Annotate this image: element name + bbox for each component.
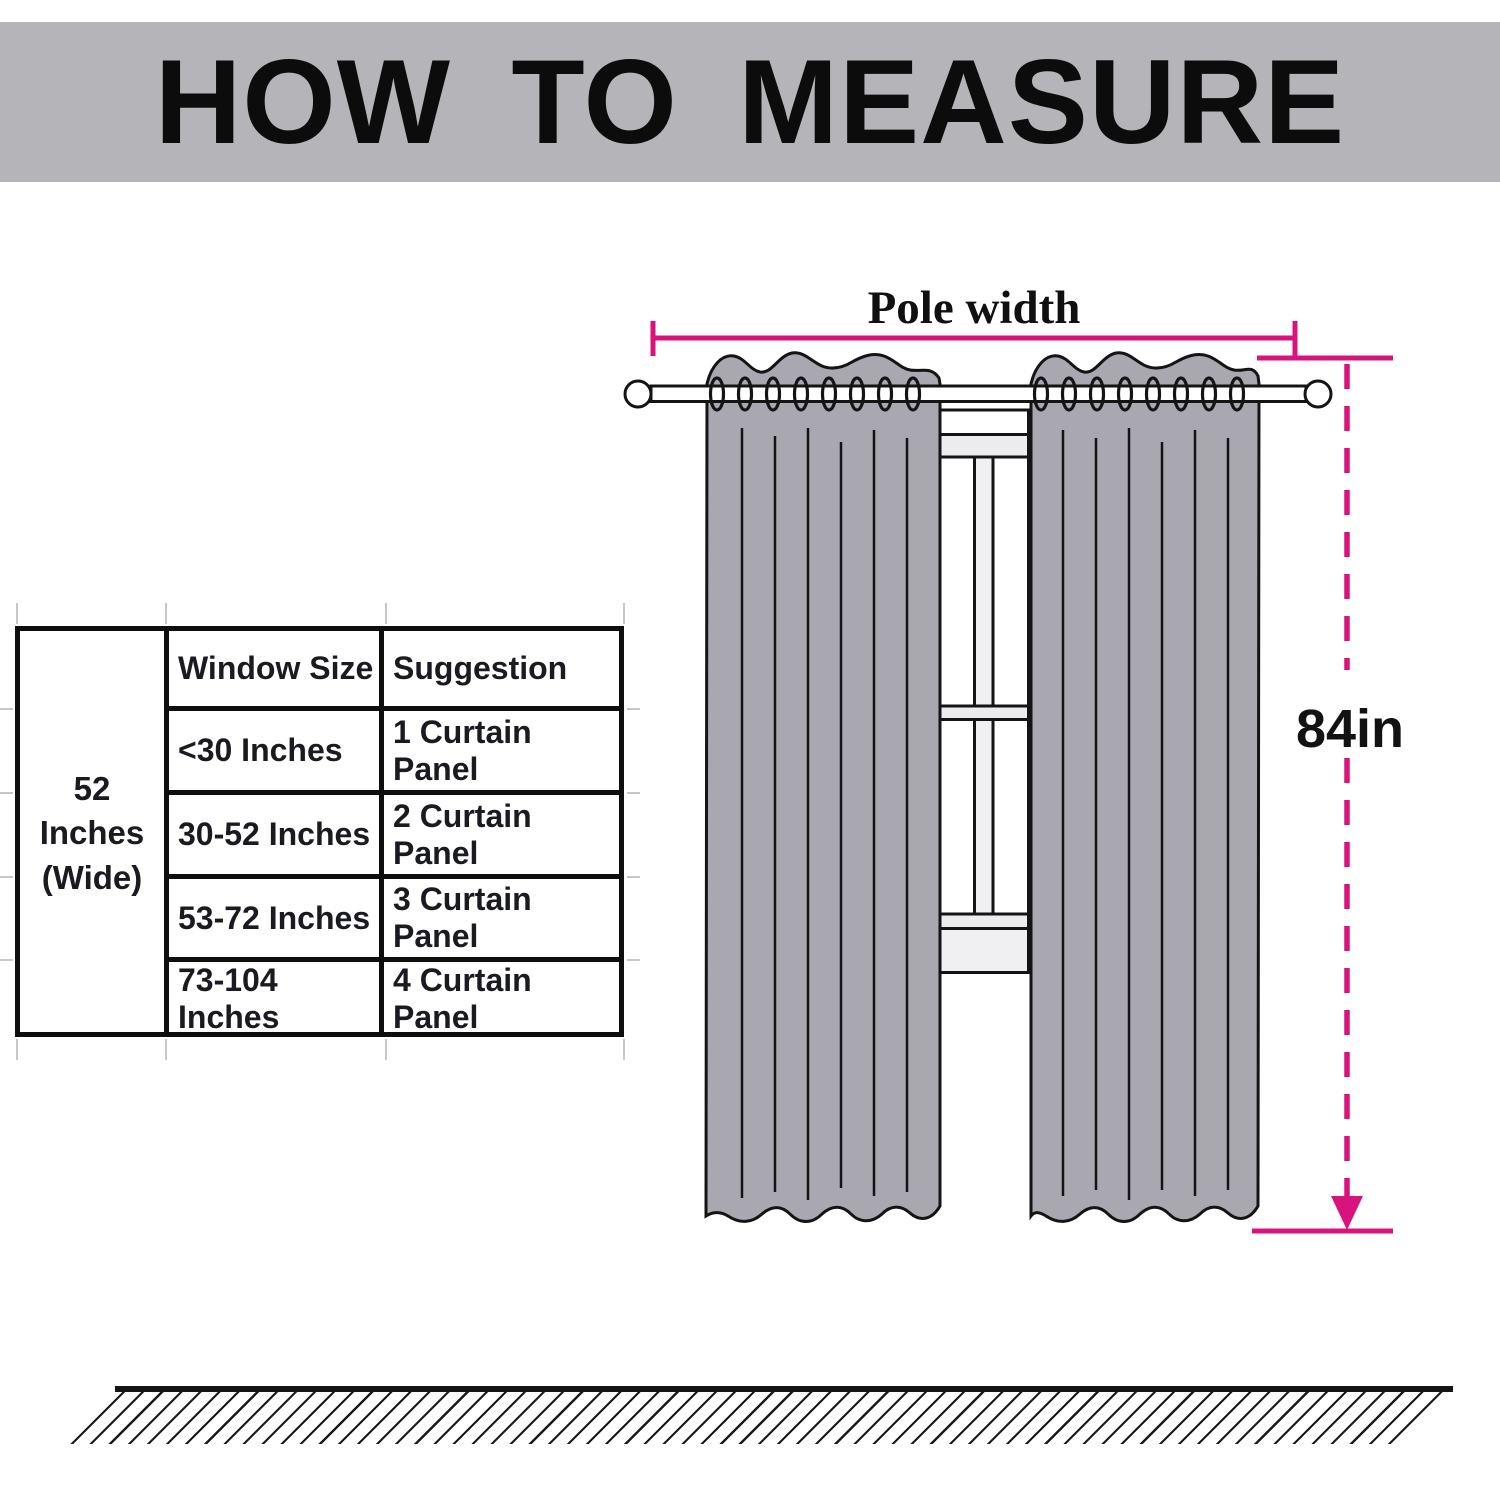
window-mullion — [975, 457, 992, 914]
arrow-down-icon — [1331, 1196, 1363, 1230]
curtain-panel-right — [1031, 353, 1259, 1222]
floor-hatch — [65, 1392, 1453, 1444]
floor-line — [115, 1386, 1453, 1392]
window-bottom-rail — [940, 915, 1029, 927]
window — [937, 409, 1030, 974]
pole-finial-right — [1305, 381, 1331, 407]
window-top-rail — [940, 436, 1029, 456]
curtain-length-label: 84in — [1296, 699, 1404, 759]
measuring-guide-infographic: HOW TO MEASURE 52 Inches (Wide) Window S… — [0, 0, 1500, 1500]
curtain-pole — [651, 386, 1306, 402]
height-dimension-line — [1252, 358, 1393, 1231]
pole-width-label: Pole width — [868, 282, 1081, 334]
window-sill — [940, 930, 1029, 972]
pole-finial-left — [625, 381, 651, 407]
window-mid-rail — [940, 707, 1029, 718]
curtain-diagram: Pole width 84in — [0, 0, 1500, 1500]
